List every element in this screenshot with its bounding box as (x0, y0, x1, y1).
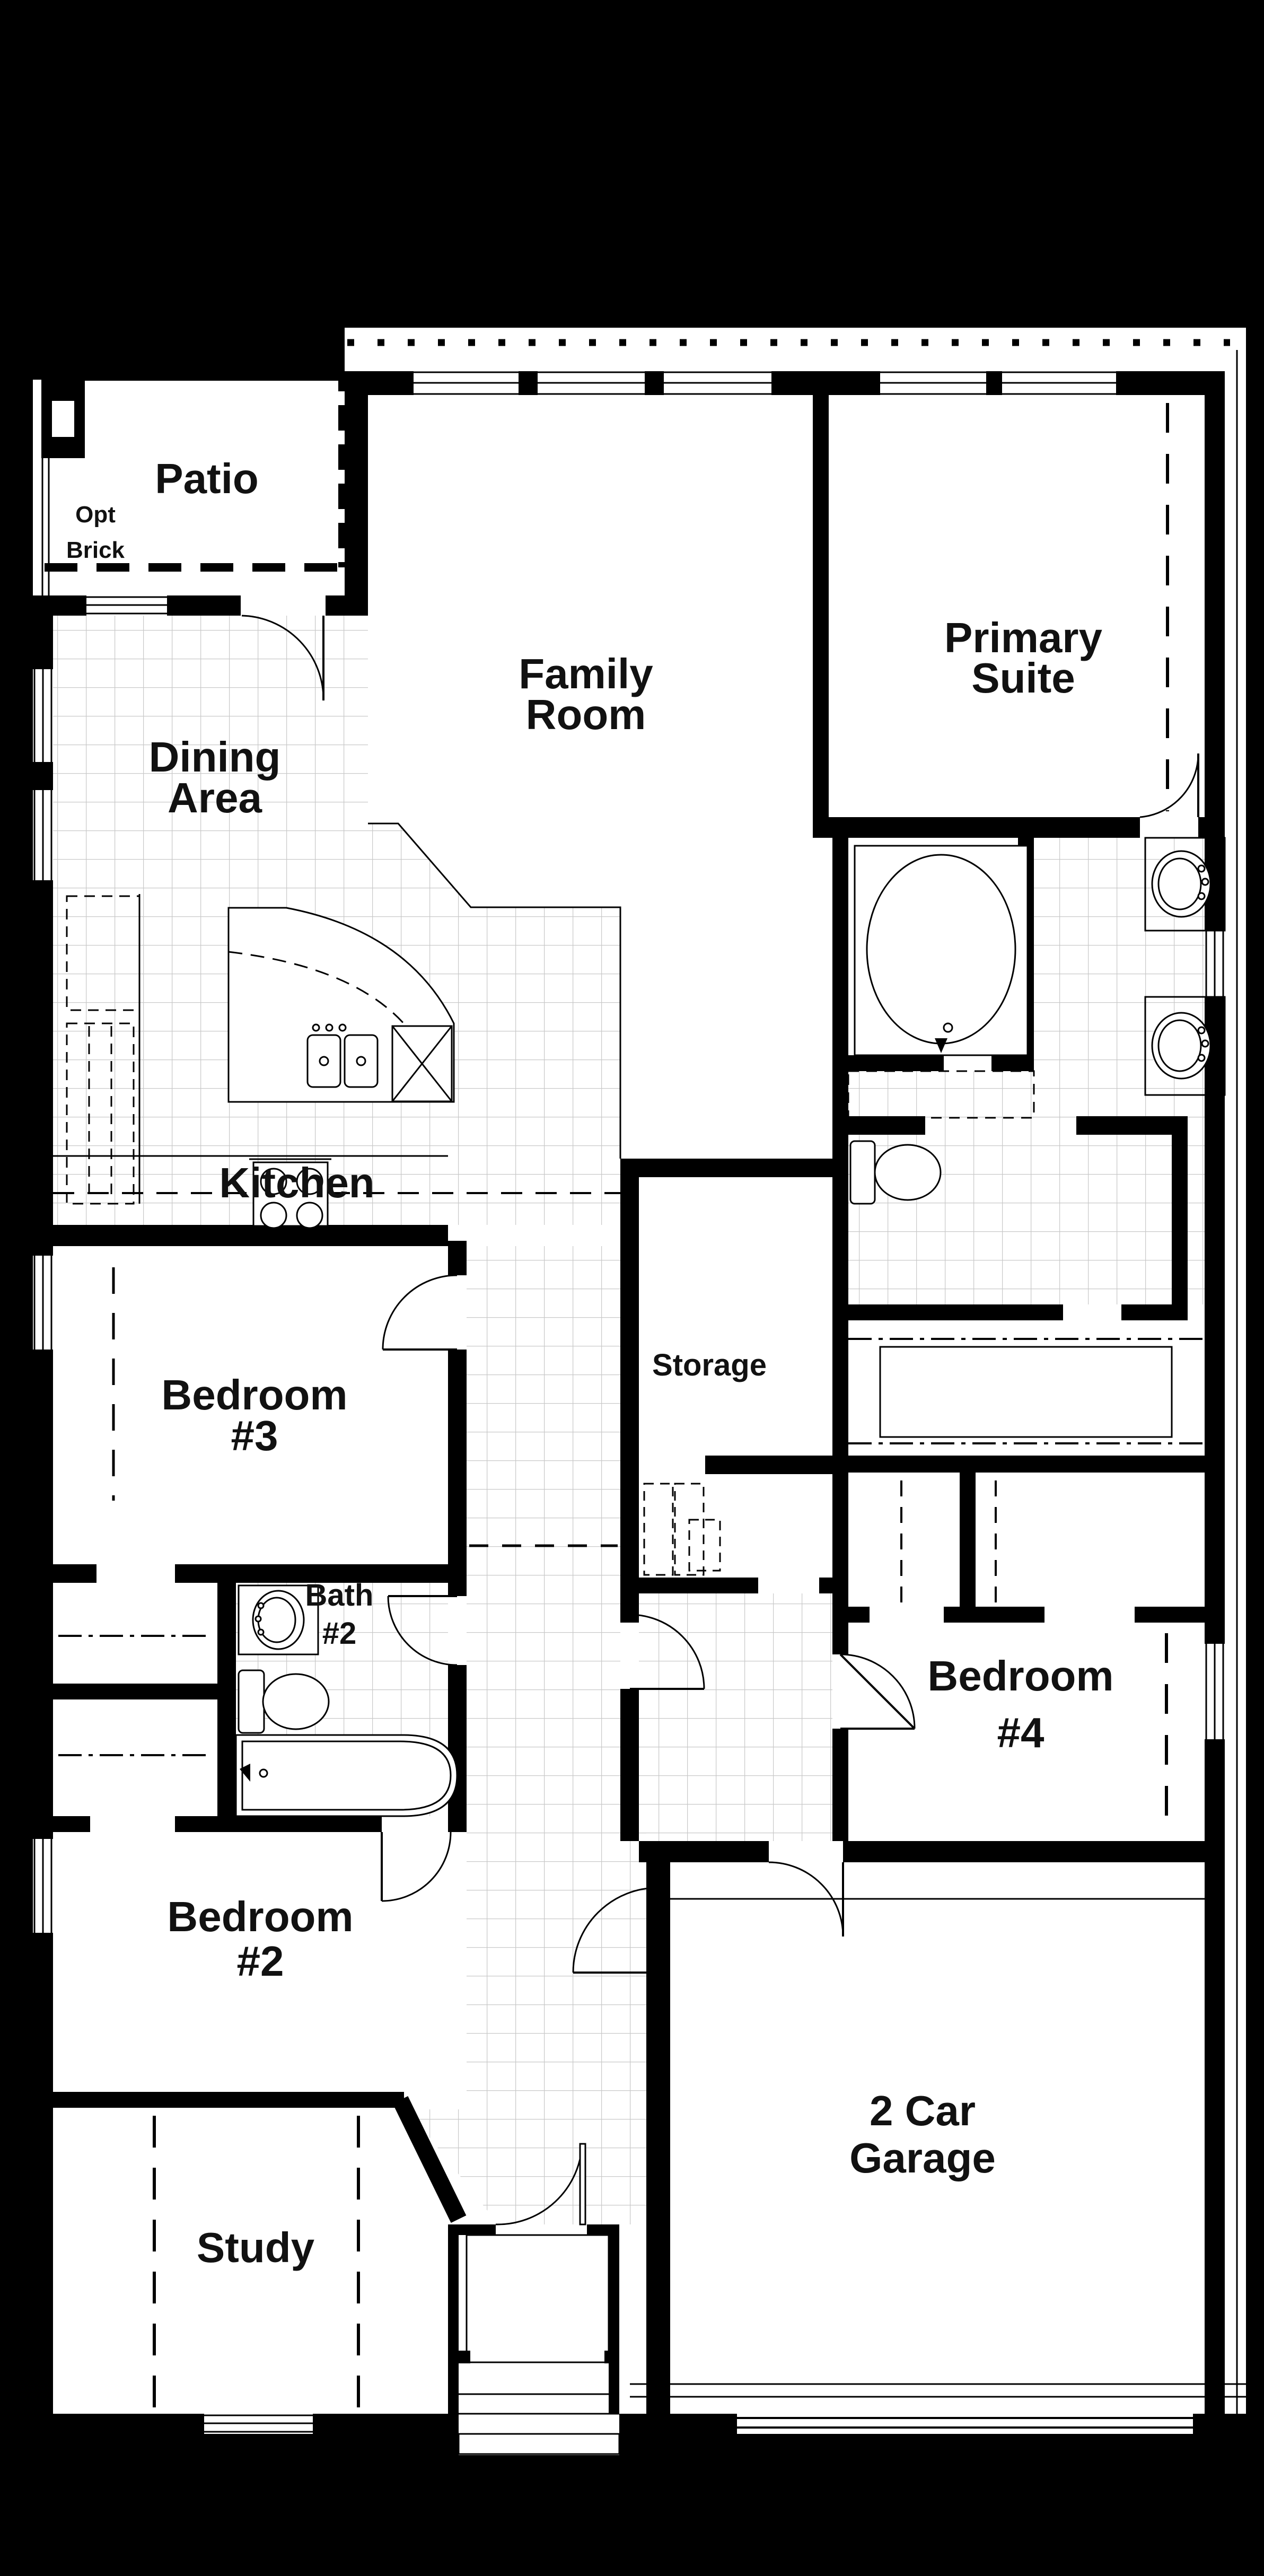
water-closet-tile (848, 1116, 1205, 1304)
floor-plan-page: Patio Opt Brick Dining Area Family Room … (0, 0, 1264, 2576)
study-label: Study (197, 2224, 315, 2271)
bed3-label-1: Bedroom (161, 1371, 347, 1418)
porch-slab (459, 2434, 619, 2455)
bed4-label-1: Bedroom (927, 1652, 1113, 1699)
bed3-label-2: #3 (231, 1412, 278, 1459)
kitchen-label: Kitchen (219, 1159, 374, 1206)
opt-brick-label-2: Brick (66, 537, 125, 563)
dining-label-2: Area (168, 774, 262, 821)
primary-toilet (850, 1141, 941, 1204)
patio-label: Patio (155, 455, 259, 502)
storage-label: Storage (652, 1348, 767, 1382)
porch-pilaster (604, 2351, 619, 2363)
garage-label-1: 2 Car (870, 2087, 976, 2134)
opt-brick-label-1: Opt (75, 502, 116, 528)
porch-pilaster (454, 2351, 470, 2363)
patio-right-wall (345, 371, 368, 614)
bed4-label-2: #4 (997, 1709, 1044, 1756)
family-label-2: Room (526, 691, 646, 738)
family-label-1: Family (519, 650, 653, 697)
dishwasher (392, 1026, 452, 1101)
primary-tub (855, 846, 1028, 1055)
shower-tile (848, 1071, 1034, 1119)
garage-label-2: Garage (849, 2134, 996, 2181)
bath2-label-1: Bath (305, 1578, 374, 1613)
bed2-label-1: Bedroom (167, 1893, 353, 1940)
floor-plan-drawing: Patio Opt Brick Dining Area Family Room … (0, 0, 1264, 2576)
mud-room-tile (639, 1593, 832, 1841)
bed2-label-2: #2 (237, 1938, 284, 1985)
primary-label-2: Suite (971, 654, 1075, 702)
bath2-label-2: #2 (322, 1616, 357, 1651)
hall-tile (467, 1246, 620, 1832)
bath2-toilet (239, 1670, 329, 1733)
bath2-tub (236, 1735, 457, 1816)
dining-label-1: Dining (149, 733, 281, 781)
